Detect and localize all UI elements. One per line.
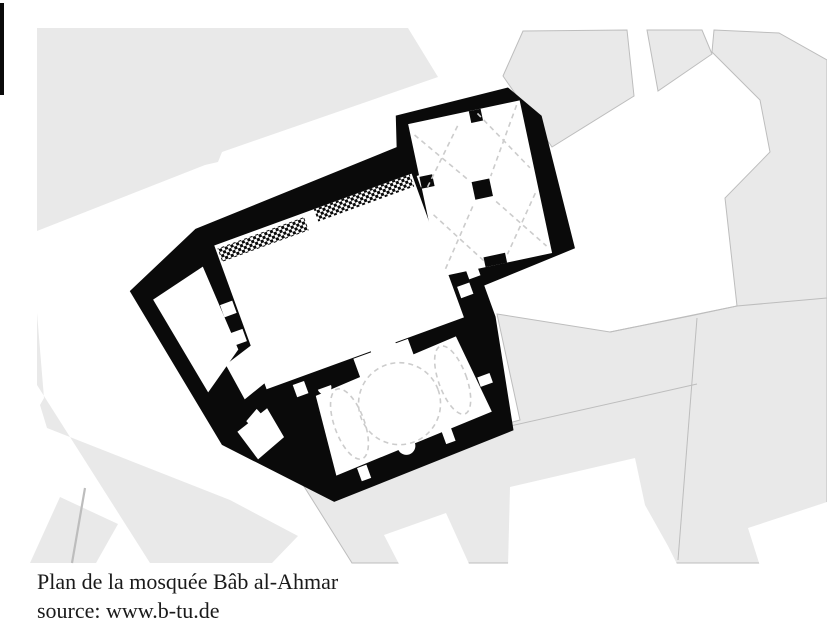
figure-caption: Plan de la mosquée Bâb al-Ahmar source: … — [37, 567, 338, 625]
caption-source: source: www.b-tu.de — [37, 596, 338, 625]
site-plan-map — [0, 0, 827, 566]
map-edge-mark — [0, 3, 4, 95]
wall-stub — [469, 109, 483, 123]
central-pillar — [472, 178, 493, 199]
caption-title: Plan de la mosquée Bâb al-Ahmar — [37, 567, 338, 596]
city-block-top-small — [647, 30, 712, 91]
figure-plan-bab-al-ahmar: Plan de la mosquée Bâb al-Ahmar source: … — [0, 0, 827, 634]
